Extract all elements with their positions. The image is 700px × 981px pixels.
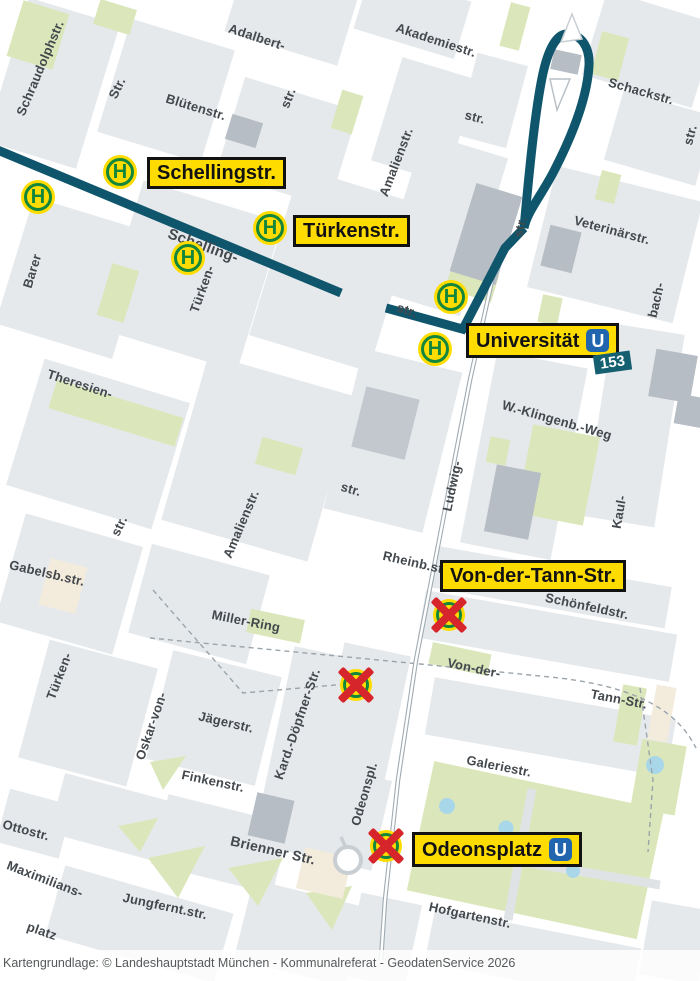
stop-name-text: Schellingstr. — [157, 163, 276, 183]
bus-stop-icon: H — [418, 332, 452, 366]
stop-name-label: OdeonsplatzU — [412, 832, 582, 867]
stop-h-letter: H — [428, 339, 442, 359]
bus-stop-icon: H — [21, 180, 55, 214]
cancelled-stop-icon — [340, 669, 372, 701]
stop-h-letter: H — [31, 187, 45, 207]
map-attribution: Kartengrundlage: © Landeshauptstadt Münc… — [3, 956, 515, 970]
ubahn-icon: U — [586, 329, 609, 352]
stop-name-label: Türkenstr. — [293, 215, 410, 247]
stop-name-text: Odeonsplatz — [422, 840, 542, 860]
stop-h-letter: H — [113, 162, 127, 182]
stop-name-text: Türkenstr. — [303, 221, 400, 241]
stop-name-text: Von-der-Tann-Str. — [450, 566, 616, 586]
stop-name-label: Schellingstr. — [147, 157, 286, 189]
ubahn-icon: U — [549, 838, 572, 861]
cancelled-stop-icon — [433, 599, 465, 631]
stop-h-letter: H — [444, 287, 458, 307]
bus-stop-icon: H — [171, 241, 205, 275]
cancelled-stop-icon — [370, 830, 402, 862]
stop-name-label: UniversitätU — [466, 323, 619, 358]
stop-name-text: Universität — [476, 331, 579, 351]
stop-h-letter: H — [263, 218, 277, 238]
bus-stop-icon: H — [253, 211, 287, 245]
stop-name-label: Von-der-Tann-Str. — [440, 560, 626, 592]
transit-map: Schraudolphstr.Str.Adalbert-str.Blütenst… — [0, 0, 700, 981]
stop-h-letter: H — [181, 248, 195, 268]
bus-stop-icon: H — [434, 280, 468, 314]
bus-stop-icon: H — [103, 155, 137, 189]
